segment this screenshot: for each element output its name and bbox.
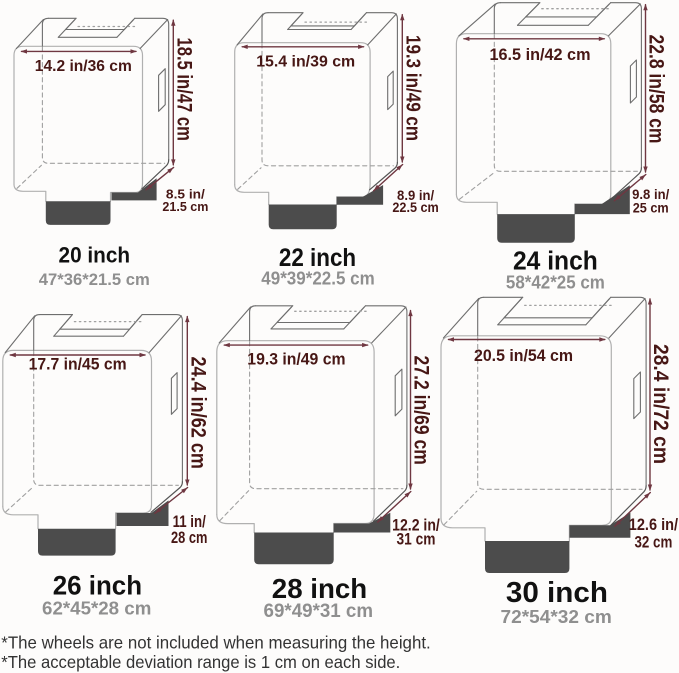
svg-text:31 cm: 31 cm: [397, 529, 436, 548]
svg-text:15.4 in/39 cm: 15.4 in/39 cm: [256, 53, 355, 70]
svg-text:22.5 cm: 22.5 cm: [392, 199, 438, 215]
svg-text:17.7 in/45 cm: 17.7 in/45 cm: [29, 355, 127, 373]
svg-text:19.3 in/49 cm: 19.3 in/49 cm: [401, 35, 424, 141]
svg-text:12.6 in/: 12.6 in/: [629, 515, 679, 534]
svg-text:21.5 cm: 21.5 cm: [162, 199, 208, 214]
svg-text:62*45*28 cm: 62*45*28 cm: [42, 597, 151, 618]
svg-text:22.8 in/58 cm: 22.8 in/58 cm: [645, 35, 668, 144]
svg-text:32 cm: 32 cm: [635, 533, 673, 552]
svg-text:19.3 in/49 cm: 19.3 in/49 cm: [247, 350, 345, 368]
svg-text:26 inch: 26 inch: [53, 571, 142, 601]
svg-text:24 inch: 24 inch: [513, 248, 598, 276]
svg-text:*The wheels are not included w: *The wheels are not included when measur…: [1, 633, 430, 653]
svg-text:27.2 in/69 cm: 27.2 in/69 cm: [410, 356, 434, 465]
svg-text:28 inch: 28 inch: [272, 573, 367, 604]
svg-text:16.5 in/42 cm: 16.5 in/42 cm: [490, 46, 591, 64]
svg-text:49*39*22.5 cm: 49*39*22.5 cm: [261, 268, 374, 289]
svg-text:28 cm: 28 cm: [171, 529, 207, 547]
svg-text:47*36*21.5 cm: 47*36*21.5 cm: [39, 270, 150, 289]
svg-text:24.4 in/62 cm: 24.4 in/62 cm: [186, 357, 209, 469]
svg-text:*The acceptable deviation rang: *The acceptable deviation range is 1 cm …: [1, 652, 400, 672]
svg-text:20.5 in/54 cm: 20.5 in/54 cm: [474, 347, 573, 365]
svg-text:30 inch: 30 inch: [506, 577, 608, 609]
svg-text:25 cm: 25 cm: [633, 199, 669, 215]
svg-text:14.2 in/36 cm: 14.2 in/36 cm: [35, 58, 132, 75]
svg-text:28.4 in/72 cm: 28.4 in/72 cm: [649, 344, 673, 464]
svg-text:18.5 in/47 cm: 18.5 in/47 cm: [172, 37, 195, 141]
svg-text:72*54*32 cm: 72*54*32 cm: [501, 606, 612, 627]
svg-text:20 inch: 20 inch: [59, 243, 131, 268]
svg-text:58*42*25 cm: 58*42*25 cm: [506, 272, 605, 292]
svg-text:69*49*31 cm: 69*49*31 cm: [264, 601, 374, 622]
